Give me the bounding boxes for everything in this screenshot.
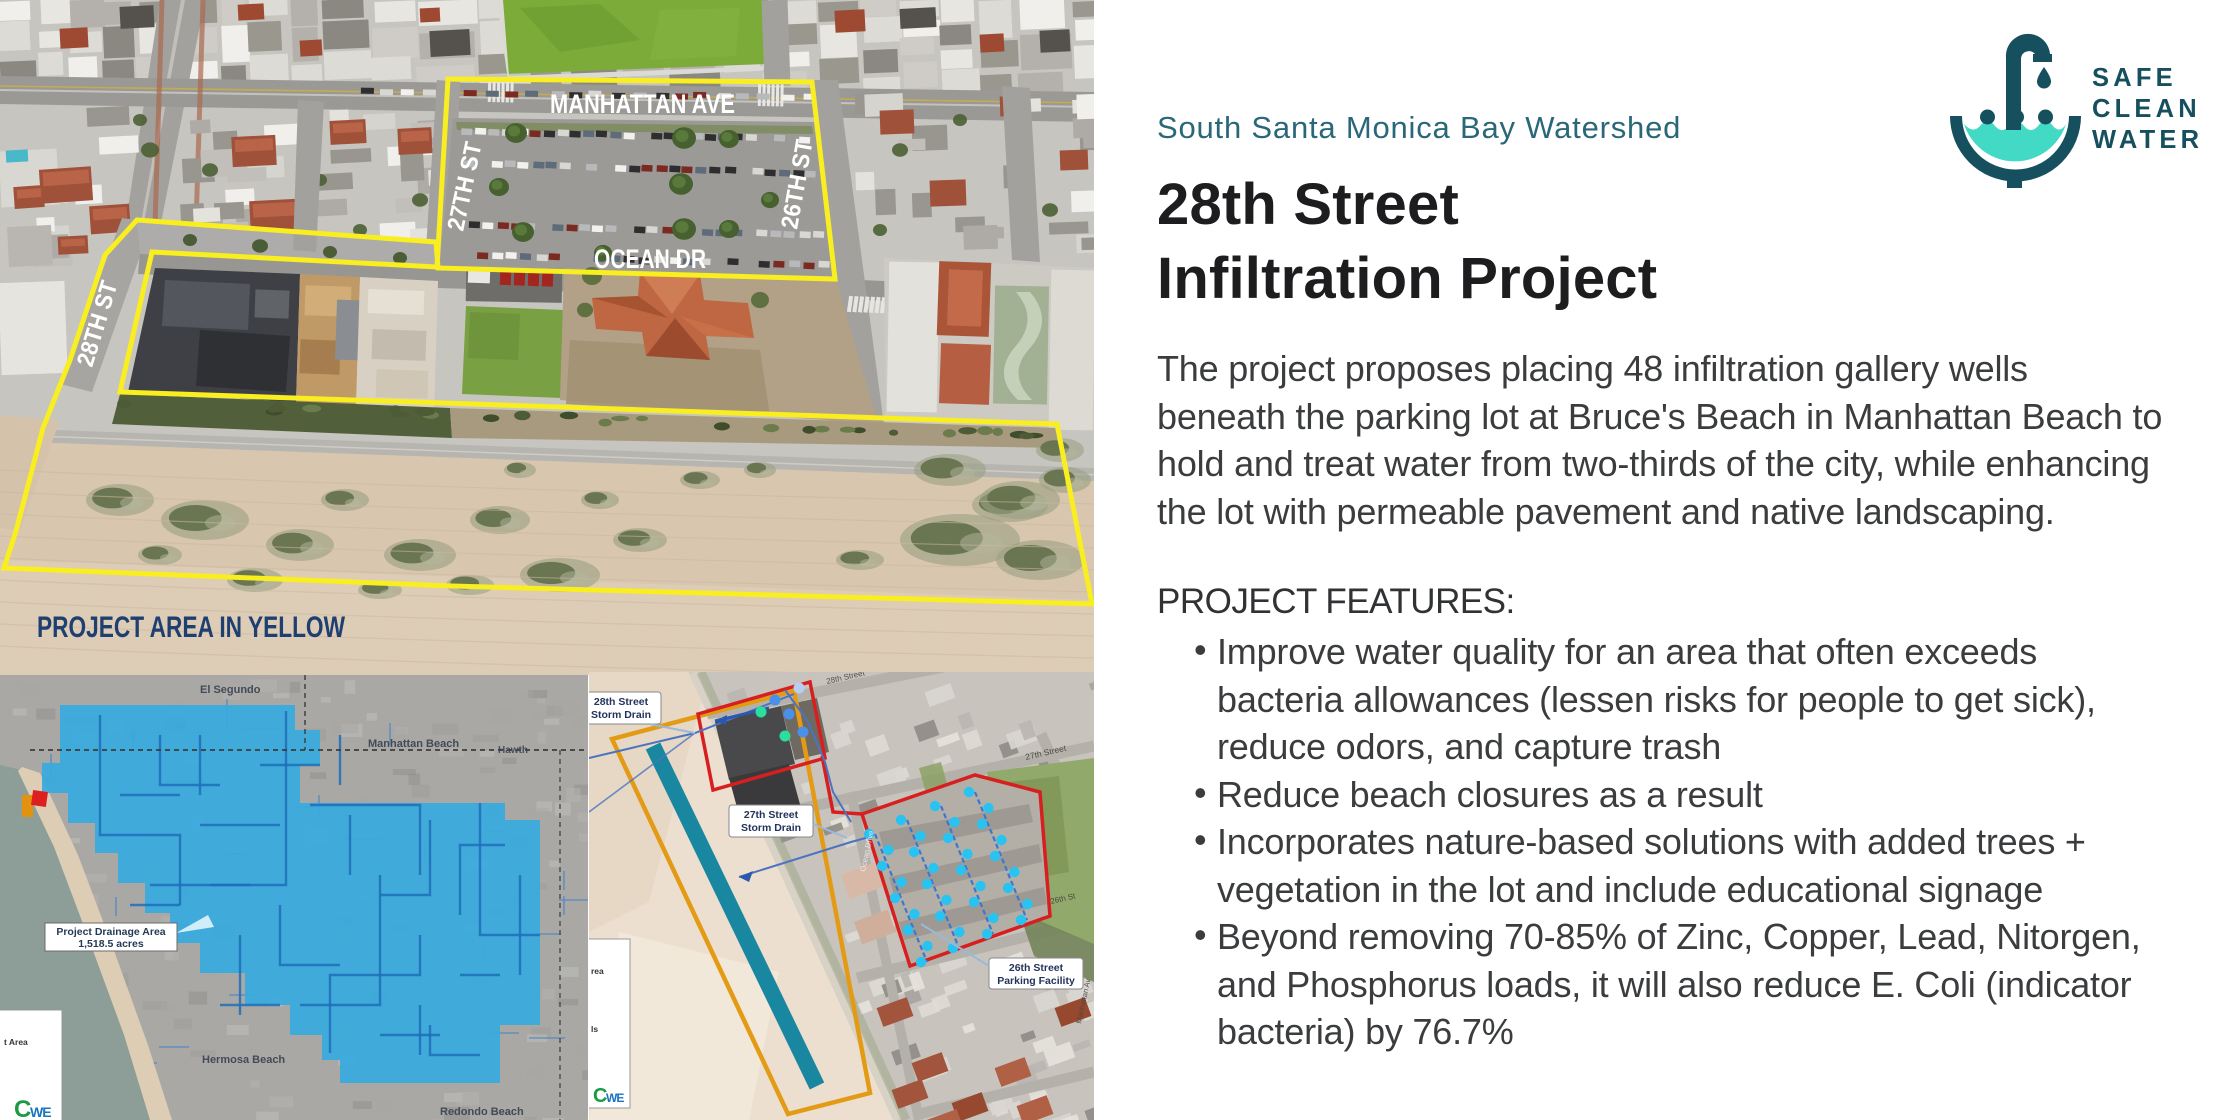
svg-text:Hermosa Beach: Hermosa Beach: [202, 1054, 285, 1066]
svg-text:Storm Drain: Storm Drain: [591, 709, 651, 721]
svg-text:1,518.5 acres: 1,518.5 acres: [78, 938, 144, 950]
svg-text:SAFE: SAFE: [2092, 64, 2177, 92]
svg-text:28th Street: 28th Street: [594, 696, 649, 708]
svg-text:Hawth: Hawth: [498, 745, 528, 756]
svg-text:WE: WE: [30, 1104, 51, 1120]
svg-text:ls: ls: [591, 1024, 598, 1034]
svg-text:Parking Facility: Parking Facility: [997, 975, 1075, 987]
svg-text:PROJECT AREA IN YELLOW: PROJECT AREA IN YELLOW: [37, 611, 346, 644]
svg-text:MANHATTAN AVE: MANHATTAN AVE: [550, 89, 735, 119]
svg-text:27th Street: 27th Street: [744, 809, 799, 821]
svg-text:WE: WE: [606, 1091, 624, 1105]
svg-text:CLEAN: CLEAN: [2092, 95, 2201, 123]
svg-text:t Area: t Area: [4, 1037, 28, 1047]
svg-text:Redondo Beach: Redondo Beach: [440, 1106, 524, 1118]
svg-text:26th Street: 26th Street: [1009, 962, 1064, 974]
svg-text:OCEAN DR: OCEAN DR: [594, 244, 706, 274]
svg-text:Storm Drain: Storm Drain: [741, 822, 801, 834]
svg-text:Project Drainage Area: Project Drainage Area: [56, 926, 165, 938]
svg-text:C: C: [14, 1096, 31, 1120]
svg-text:Manhattan Beach: Manhattan Beach: [368, 738, 459, 750]
svg-text:rea: rea: [591, 966, 604, 976]
svg-text:El Segundo: El Segundo: [200, 684, 261, 696]
svg-text:WATER: WATER: [2092, 126, 2203, 154]
